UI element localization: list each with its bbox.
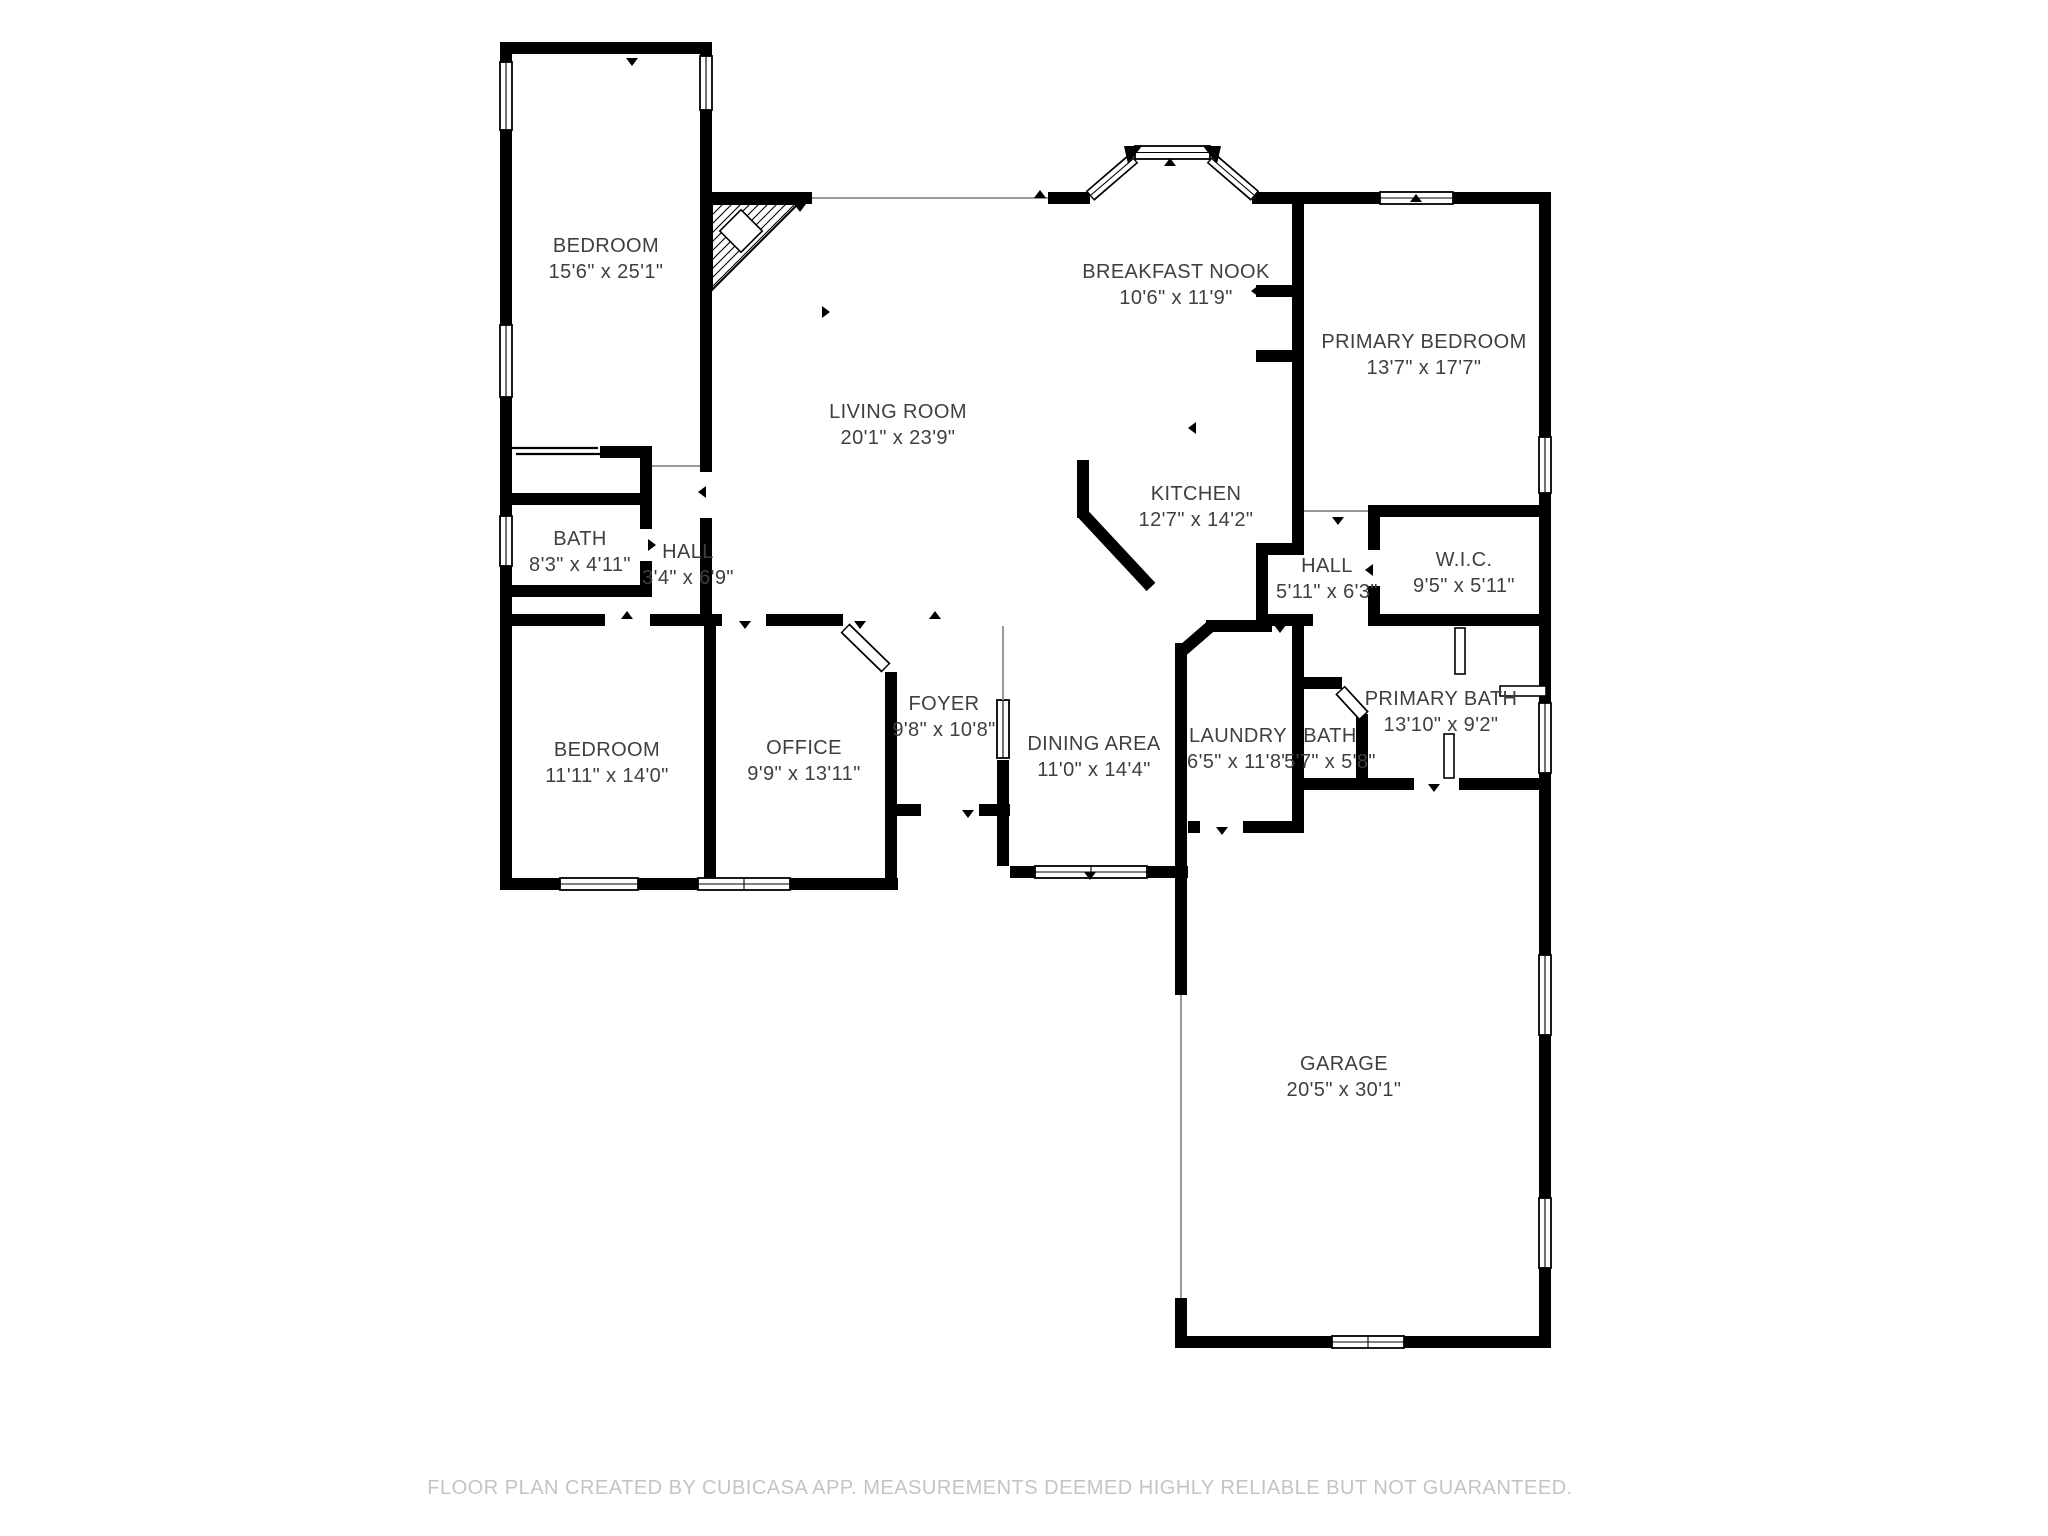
window-icon <box>700 56 712 110</box>
room-label-primary-bedroom: PRIMARY BEDROOM13'7" x 17'7" <box>1321 331 1526 379</box>
window-icon <box>560 878 638 890</box>
window-icon <box>1332 1336 1404 1348</box>
bay-window-icon <box>1090 146 1255 196</box>
window-icon <box>698 878 790 890</box>
room-label-laundry: LAUNDRY6'5" x 11'8" <box>1187 725 1289 773</box>
room-labels: BEDROOM15'6" x 25'1"BREAKFAST NOOK10'6" … <box>529 235 1527 1101</box>
room-label-breakfast-nook: BREAKFAST NOOK10'6" x 11'9" <box>1082 261 1270 309</box>
window-icon <box>500 325 512 397</box>
door-leaf-icon <box>1340 690 1364 716</box>
room-label-bedroom-lower: BEDROOM11'11" x 14'0" <box>545 739 668 787</box>
room-label-wic: W.I.C.9'5" x 5'11" <box>1413 549 1515 597</box>
room-label-bedroom-upper: BEDROOM15'6" x 25'1" <box>549 235 664 283</box>
room-label-living-room: LIVING ROOM20'1" x 23'9" <box>829 401 967 449</box>
room-label-hall: HALL3'4" x 6'9" <box>642 541 734 589</box>
door-leaf-icon <box>1455 628 1465 674</box>
room-label-dining-area: DINING AREA11'0" x 14'4" <box>1027 733 1161 781</box>
window-icon <box>997 700 1009 758</box>
room-label-primary-bath: PRIMARY BATH13'10" x 9'2" <box>1365 688 1518 736</box>
room-label-garage: GARAGE20'5" x 30'1" <box>1287 1053 1402 1101</box>
room-label-kitchen: KITCHEN12'7" x 14'2" <box>1139 483 1254 531</box>
bay-top-window <box>1135 146 1210 159</box>
window-icon <box>500 62 512 130</box>
bay-right-window <box>1211 158 1255 196</box>
bay-left-window <box>1090 158 1134 196</box>
door-leaf-icon <box>845 628 886 668</box>
room-label-office: OFFICE9'9" x 13'11" <box>747 737 860 785</box>
floor-plan: BEDROOM15'6" x 25'1"BREAKFAST NOOK10'6" … <box>0 0 2048 1536</box>
fireplace-icon <box>712 204 798 290</box>
fixture-icon <box>1444 734 1454 778</box>
window-icon <box>1539 955 1551 1035</box>
window-icon <box>500 516 512 566</box>
room-label-hall-2: HALL5'11" x 6'3" <box>1276 555 1378 603</box>
window-icon <box>1539 1198 1551 1268</box>
footer-disclaimer: FLOOR PLAN CREATED BY CUBICASA APP. MEAS… <box>427 1477 1572 1499</box>
window-icon <box>1539 437 1551 493</box>
openings-layer <box>652 198 1368 1298</box>
sliding-door-icon <box>512 448 602 454</box>
room-label-bath: BATH8'3" x 4'11" <box>529 528 631 576</box>
room-label-foyer: FOYER9'8" x 10'8" <box>892 693 995 741</box>
window-icon <box>1539 703 1551 773</box>
